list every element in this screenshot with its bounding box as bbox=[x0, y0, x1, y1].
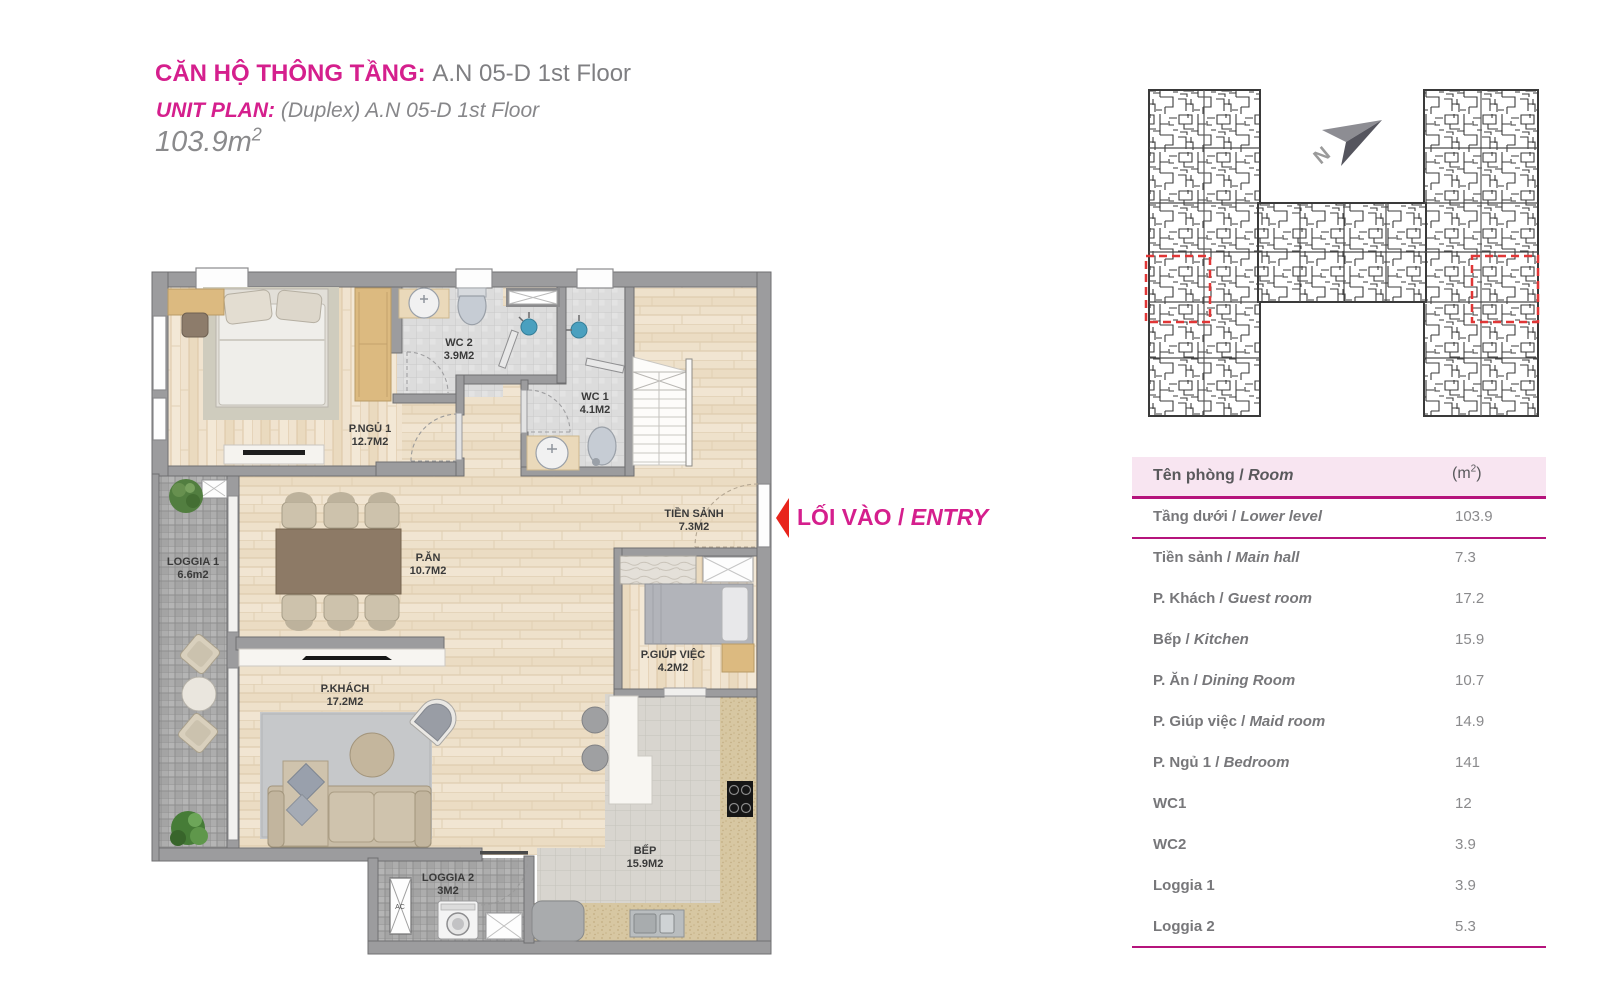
svg-text:4.2M2: 4.2M2 bbox=[658, 662, 689, 674]
svg-text:17.2M2: 17.2M2 bbox=[327, 696, 364, 708]
svg-text:LOGGIA 1: LOGGIA 1 bbox=[167, 556, 219, 568]
svg-text:P.NGỦ 1: P.NGỦ 1 bbox=[349, 422, 392, 435]
svg-text:WC 2: WC 2 bbox=[445, 337, 473, 349]
svg-text:3M2: 3M2 bbox=[437, 885, 458, 897]
svg-text:P.GIÚP VIỆC: P.GIÚP VIỆC bbox=[641, 648, 705, 661]
svg-text:BẾP: BẾP bbox=[634, 844, 657, 857]
svg-text:12.7M2: 12.7M2 bbox=[352, 436, 389, 448]
svg-text:3.9M2: 3.9M2 bbox=[444, 350, 475, 362]
svg-text:4.1M2: 4.1M2 bbox=[580, 404, 611, 416]
svg-text:P.KHÁCH: P.KHÁCH bbox=[321, 682, 370, 695]
svg-text:WC 1: WC 1 bbox=[581, 391, 609, 403]
svg-text:15.9M2: 15.9M2 bbox=[627, 858, 664, 870]
svg-text:LOGGIA 2: LOGGIA 2 bbox=[422, 872, 474, 884]
svg-text:7.3M2: 7.3M2 bbox=[679, 521, 710, 533]
svg-text:TIỀN SẢNH: TIỀN SẢNH bbox=[664, 507, 723, 520]
svg-text:AC: AC bbox=[395, 904, 405, 911]
svg-text:10.7M2: 10.7M2 bbox=[410, 565, 447, 577]
svg-text:6.6m2: 6.6m2 bbox=[177, 569, 208, 581]
svg-text:P.ĂN: P.ĂN bbox=[416, 551, 441, 564]
svg-text:N: N bbox=[1310, 143, 1335, 169]
